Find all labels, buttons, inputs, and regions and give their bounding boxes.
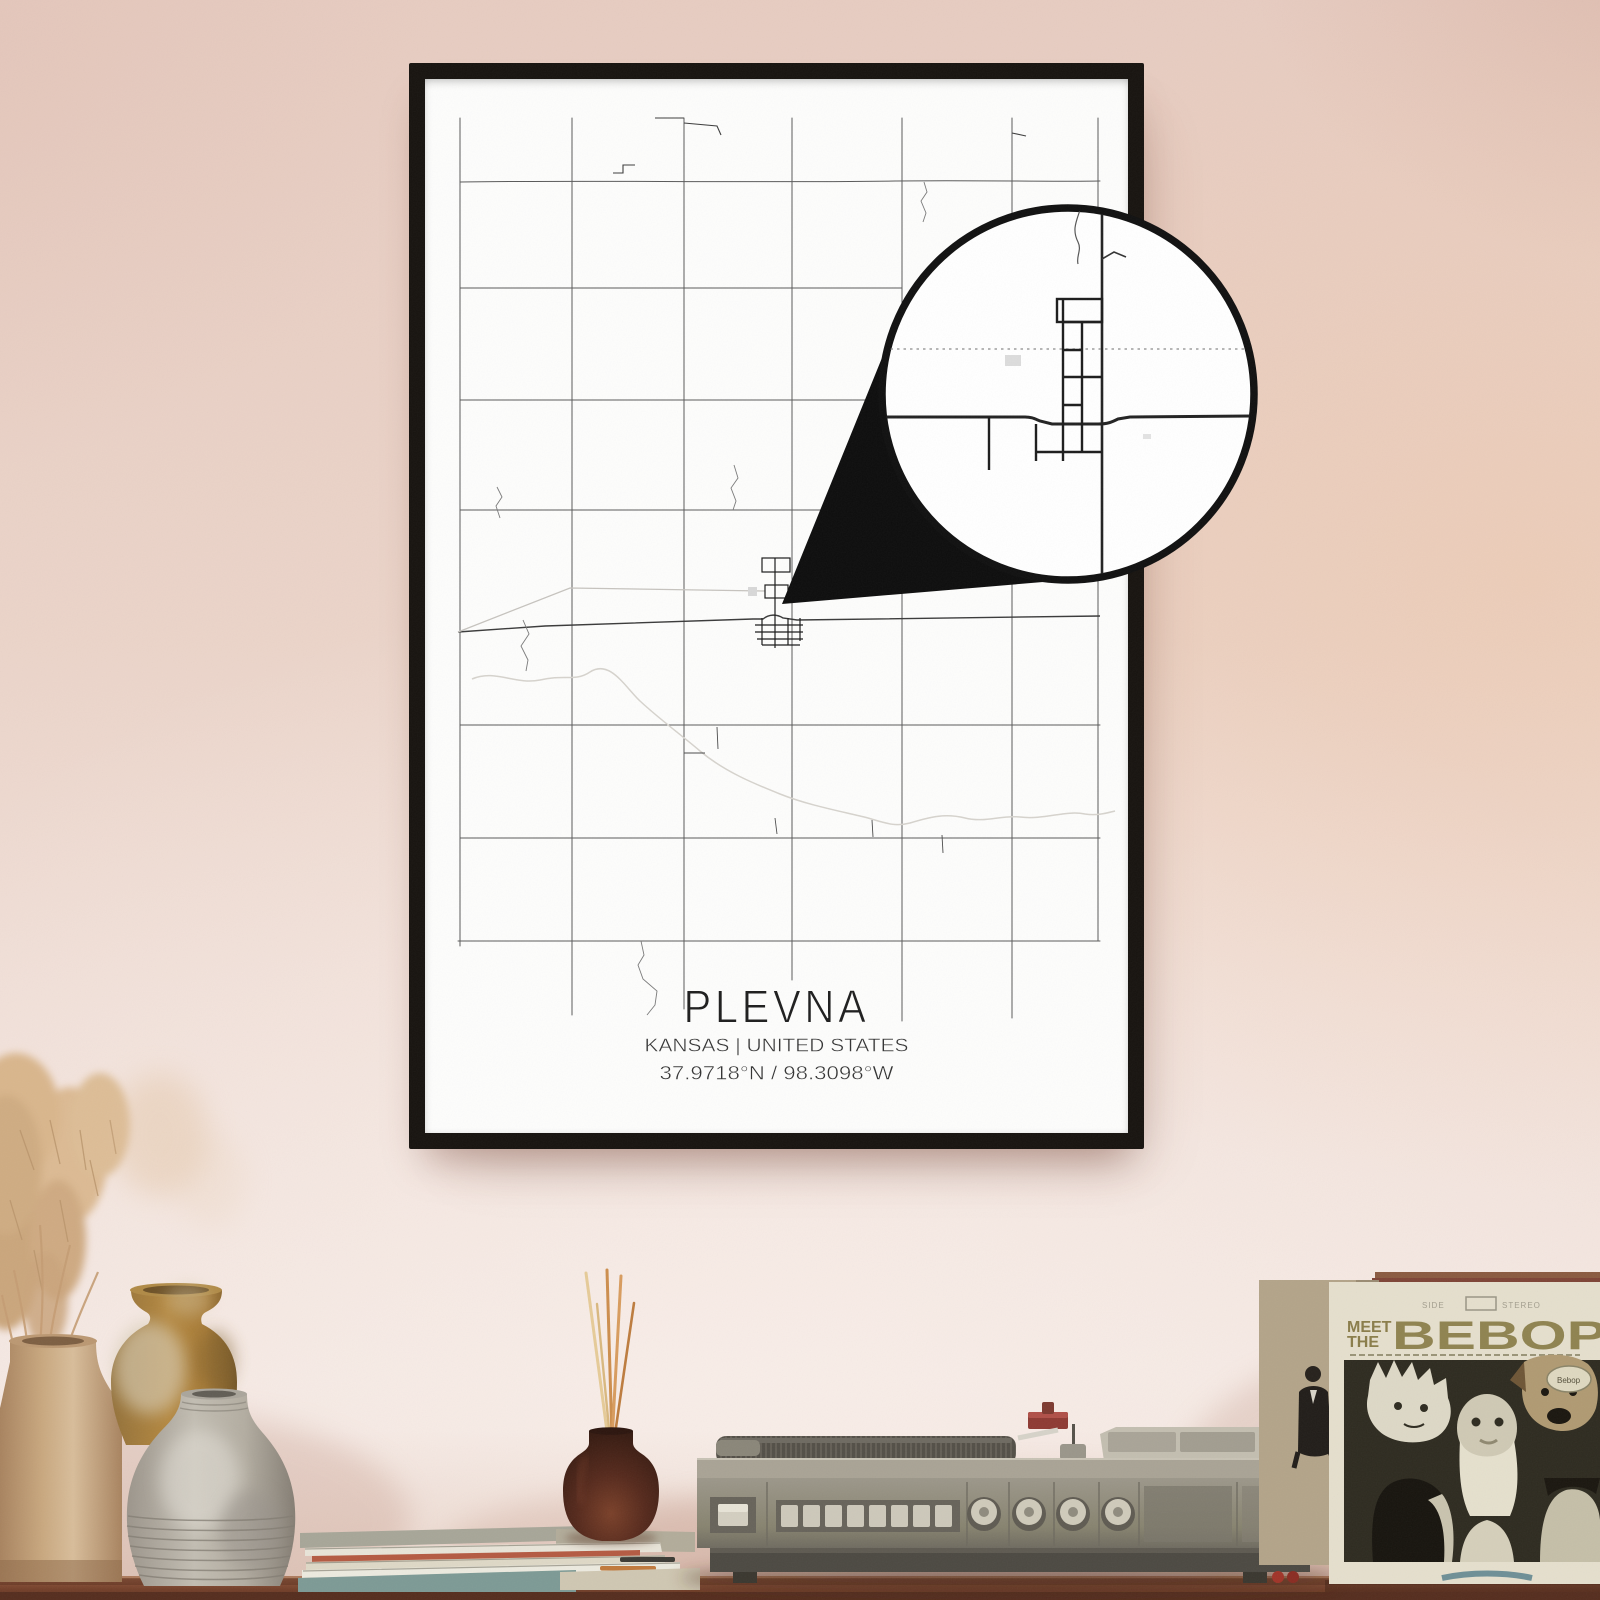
svg-text:BEBOP: BEBOP: [1392, 1314, 1600, 1358]
svg-text:STEREO: STEREO: [1502, 1301, 1541, 1310]
svg-text:PLEVNA: PLEVNA: [684, 981, 870, 1033]
svg-text:SIDE: SIDE: [1422, 1301, 1445, 1310]
svg-text:MEET: MEET: [1347, 1319, 1392, 1336]
svg-text:37.9718°N / 98.3098°W: 37.9718°N / 98.3098°W: [660, 1063, 894, 1084]
svg-text:KANSAS | UNITED STATES: KANSAS | UNITED STATES: [645, 1034, 909, 1055]
svg-text:THE: THE: [1347, 1334, 1379, 1351]
svg-text:Bebop: Bebop: [1557, 1376, 1581, 1385]
